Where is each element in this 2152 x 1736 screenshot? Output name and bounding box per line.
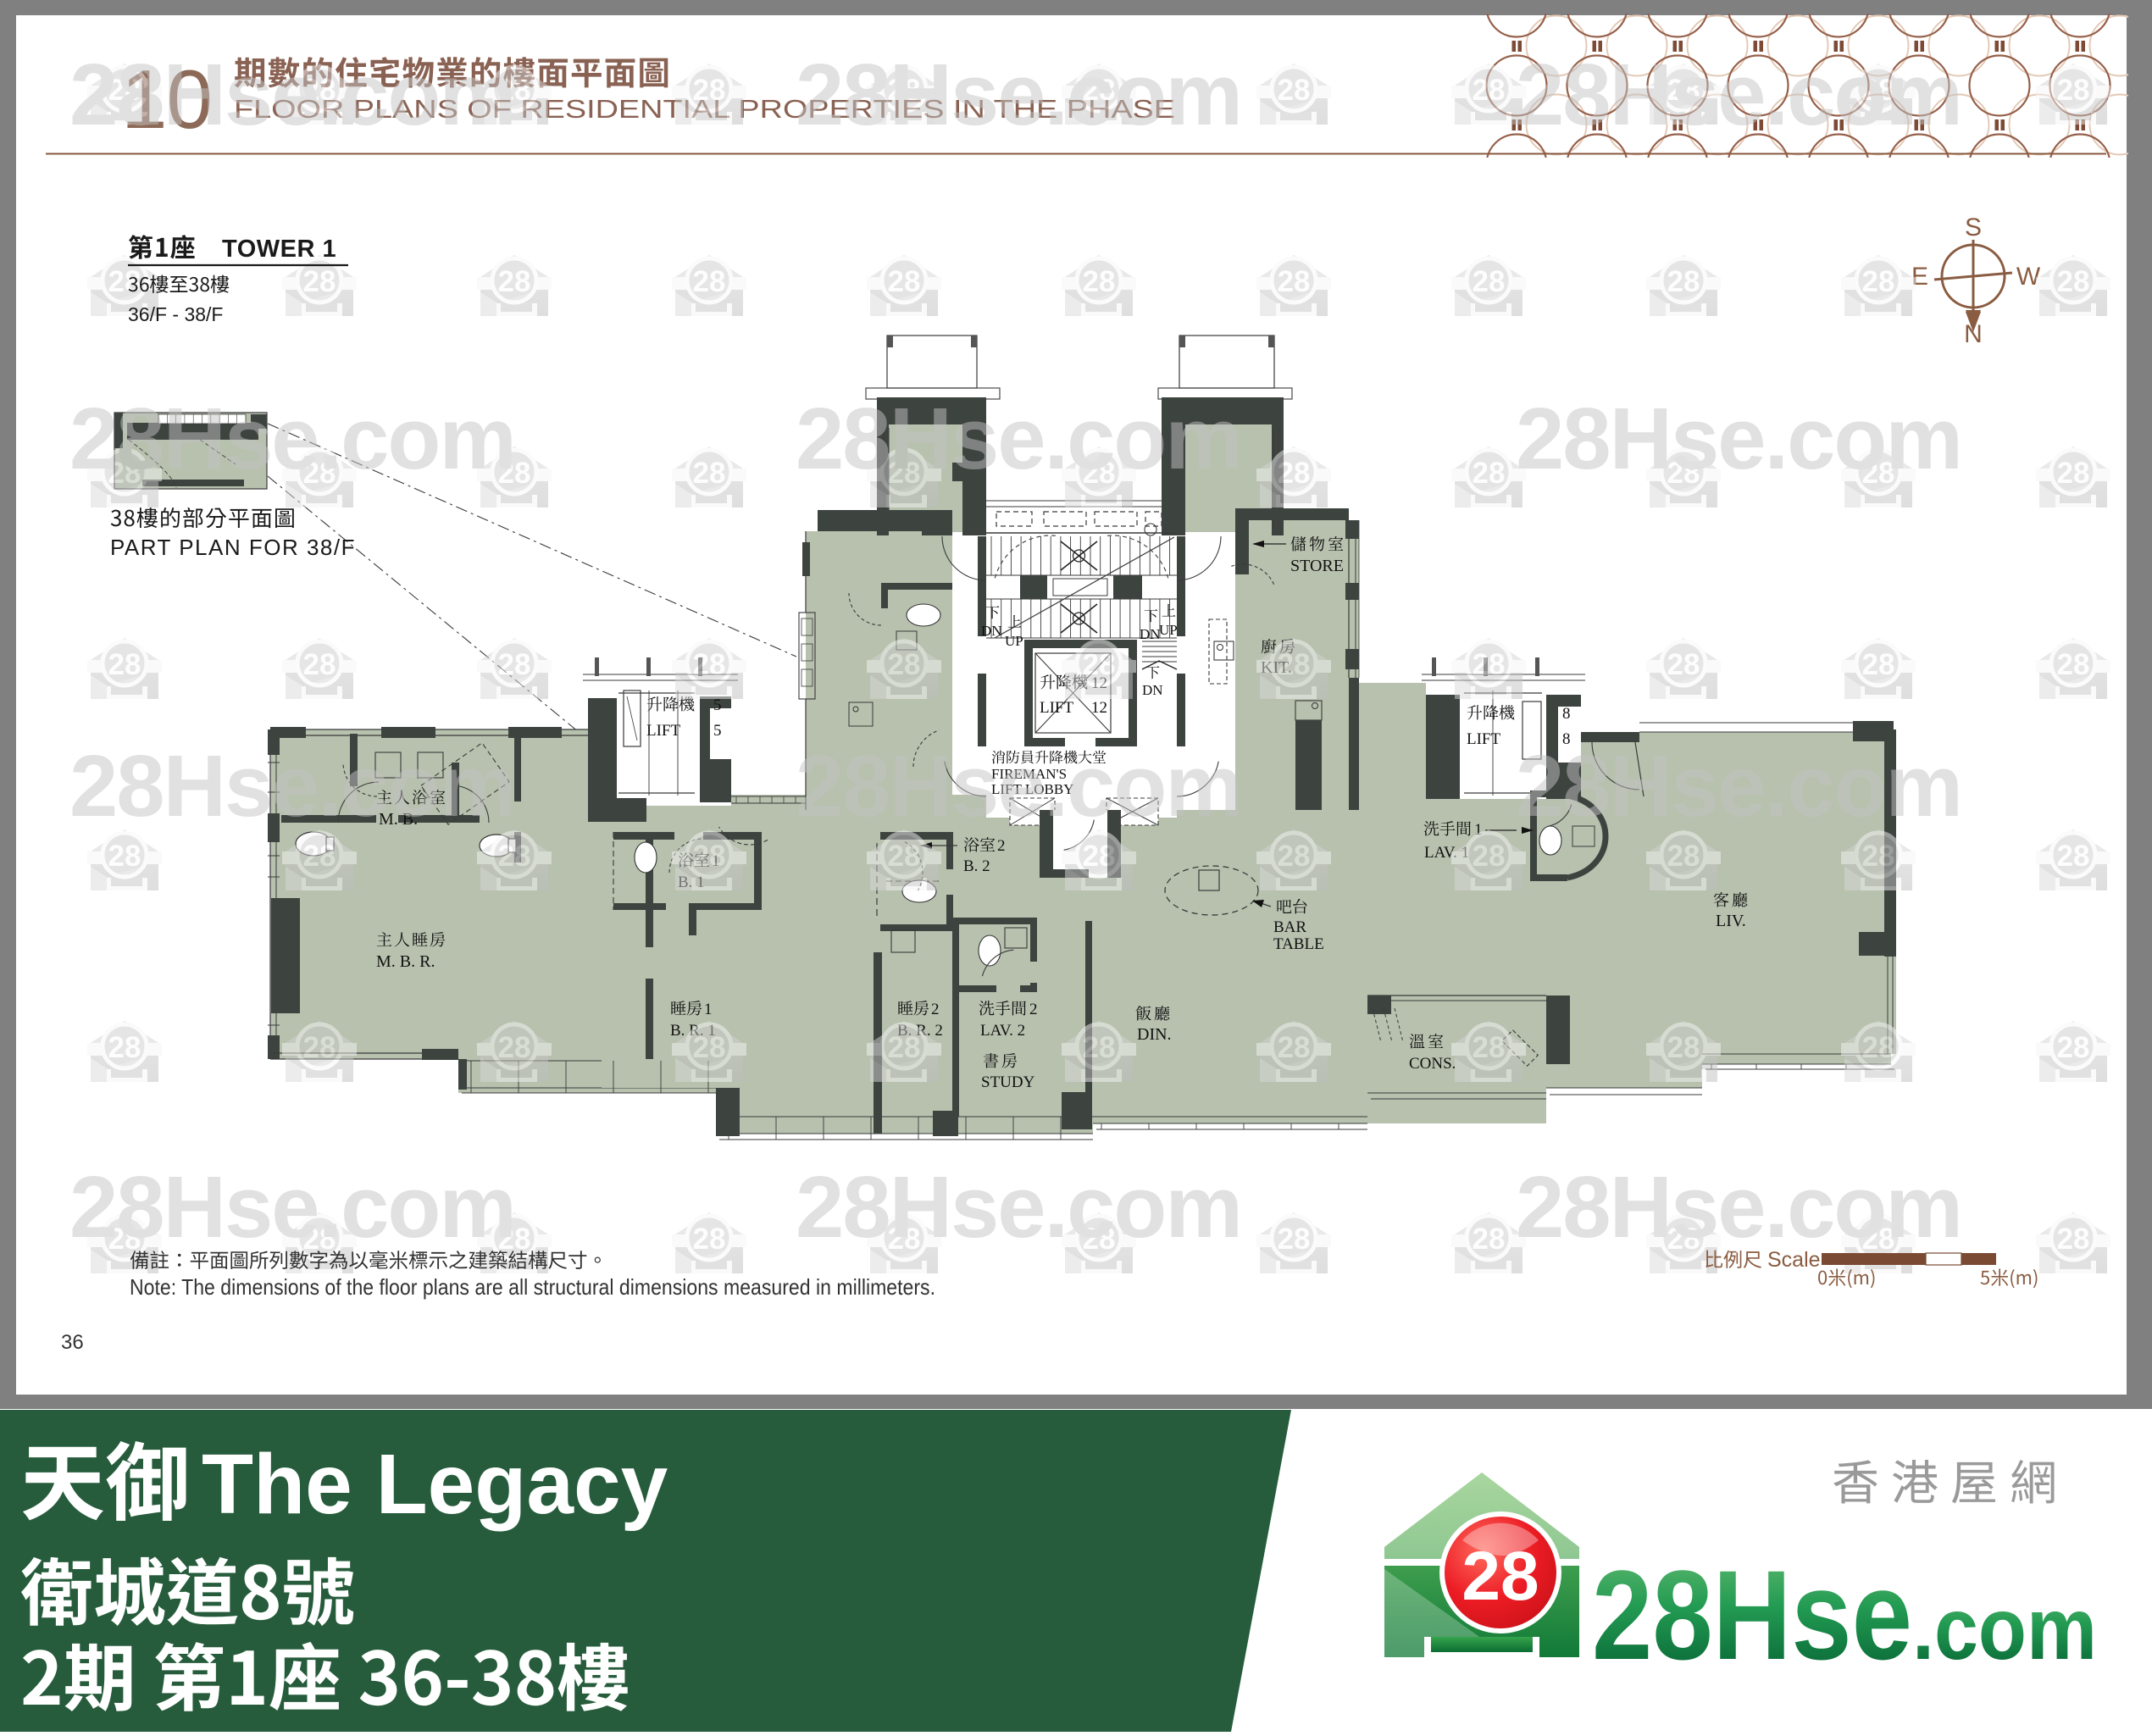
svg-text:CONS.: CONS. [1409, 1055, 1456, 1073]
svg-text:2: 2 [997, 837, 1006, 855]
svg-text:28: 28 [1461, 1538, 1539, 1615]
svg-text:DN: DN [1140, 626, 1161, 642]
svg-text:LIFT: LIFT [1040, 699, 1074, 717]
svg-text:28Hse.com: 28Hse.com [1516, 46, 1961, 143]
svg-text:UP: UP [1005, 633, 1023, 649]
svg-text:S: S [1965, 214, 1982, 241]
svg-text:28Hse.com: 28Hse.com [796, 737, 1241, 835]
svg-text:LAV. 2: LAV. 2 [980, 1022, 1025, 1040]
svg-text:M. B. R.: M. B. R. [376, 952, 435, 971]
svg-text:.com: .com [1912, 1580, 2097, 1678]
svg-text:2: 2 [931, 1001, 940, 1018]
svg-text:N: N [1964, 320, 1983, 348]
svg-text:LIFT: LIFT [646, 722, 681, 740]
svg-text:DN: DN [981, 623, 1002, 639]
svg-text:TOWER 1: TOWER 1 [222, 236, 336, 263]
svg-text:The Legacy: The Legacy [202, 1437, 668, 1532]
svg-text:5: 5 [713, 696, 722, 714]
svg-text:12: 12 [1091, 699, 1107, 717]
svg-text:28Hse.com: 28Hse.com [796, 390, 1241, 487]
svg-text:B. 2: B. 2 [963, 857, 990, 875]
svg-text:DIN.: DIN. [1137, 1025, 1172, 1044]
svg-text:28Hse: 28Hse [1592, 1544, 1912, 1686]
svg-text:28Hse.com: 28Hse.com [69, 46, 515, 143]
svg-text:Scale: Scale [1767, 1248, 1821, 1272]
svg-text:28Hse.com: 28Hse.com [69, 390, 515, 487]
svg-text:36: 36 [61, 1331, 84, 1354]
svg-text:28Hse.com: 28Hse.com [69, 1158, 515, 1256]
svg-text:PART PLAN FOR 38/F: PART PLAN FOR 38/F [110, 535, 356, 560]
svg-text:LIFT: LIFT [1467, 730, 1501, 748]
svg-text:28Hse.com: 28Hse.com [69, 737, 515, 835]
svg-text:STUDY: STUDY [981, 1073, 1035, 1091]
svg-text:36/F - 38/F: 36/F - 38/F [128, 303, 223, 325]
svg-text:28Hse.com: 28Hse.com [1516, 1158, 1961, 1256]
svg-text:UP: UP [1159, 622, 1178, 638]
svg-text:28Hse.com: 28Hse.com [796, 46, 1241, 143]
svg-text:2: 2 [1029, 1001, 1038, 1018]
svg-text:DN: DN [1142, 682, 1163, 698]
svg-text:28Hse.com: 28Hse.com [1516, 390, 1961, 487]
svg-text:Note: The dimensions of the f: Note: The dimensions of the floor plans … [130, 1274, 935, 1300]
svg-text:5: 5 [713, 722, 722, 740]
svg-text:BAR: BAR [1273, 918, 1306, 936]
svg-text:STORE: STORE [1290, 557, 1344, 575]
svg-text:28Hse.com: 28Hse.com [796, 1158, 1241, 1256]
svg-text:28Hse.com: 28Hse.com [1516, 737, 1961, 835]
svg-text:LIV.: LIV. [1716, 912, 1746, 930]
svg-text:TABLE: TABLE [1273, 935, 1324, 953]
svg-text:1: 1 [704, 1001, 713, 1018]
svg-text:8: 8 [1562, 705, 1571, 723]
